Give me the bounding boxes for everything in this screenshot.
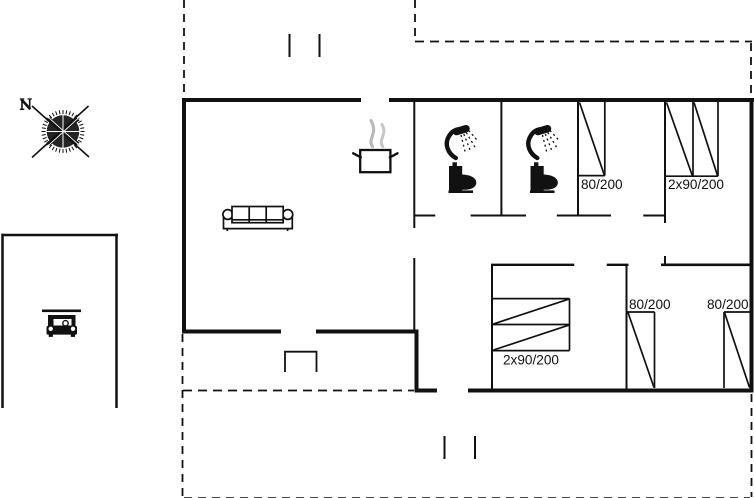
svg-text:80/200: 80/200 [581,177,623,192]
svg-text:80/200: 80/200 [629,297,671,312]
svg-text:80/200: 80/200 [707,297,749,312]
svg-text:2x90/200: 2x90/200 [668,177,724,192]
svg-text:2x90/200: 2x90/200 [503,353,559,368]
